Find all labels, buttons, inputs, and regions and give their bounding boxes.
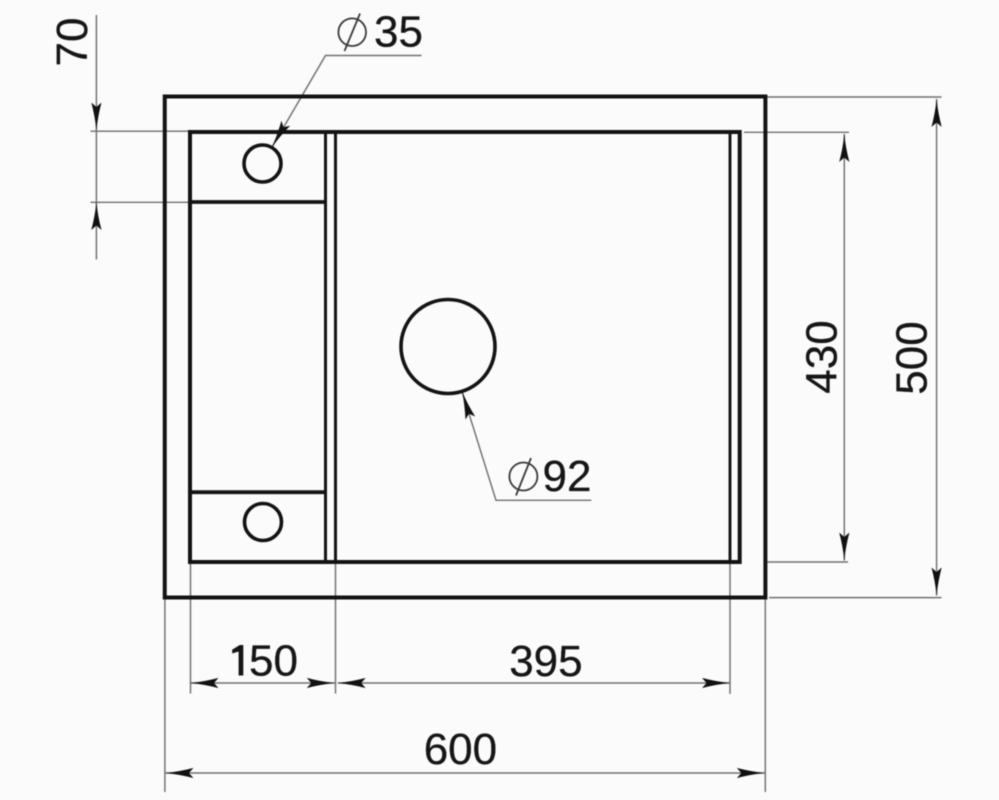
svg-text:50: 50 bbox=[249, 637, 298, 686]
svg-text:430: 430 bbox=[798, 320, 847, 393]
svg-text:395: 395 bbox=[509, 637, 582, 686]
svg-text:35: 35 bbox=[374, 8, 423, 57]
svg-text:600: 600 bbox=[424, 725, 497, 774]
svg-text:70: 70 bbox=[48, 18, 97, 67]
svg-text:92: 92 bbox=[543, 452, 592, 501]
svg-text:500: 500 bbox=[888, 321, 937, 394]
